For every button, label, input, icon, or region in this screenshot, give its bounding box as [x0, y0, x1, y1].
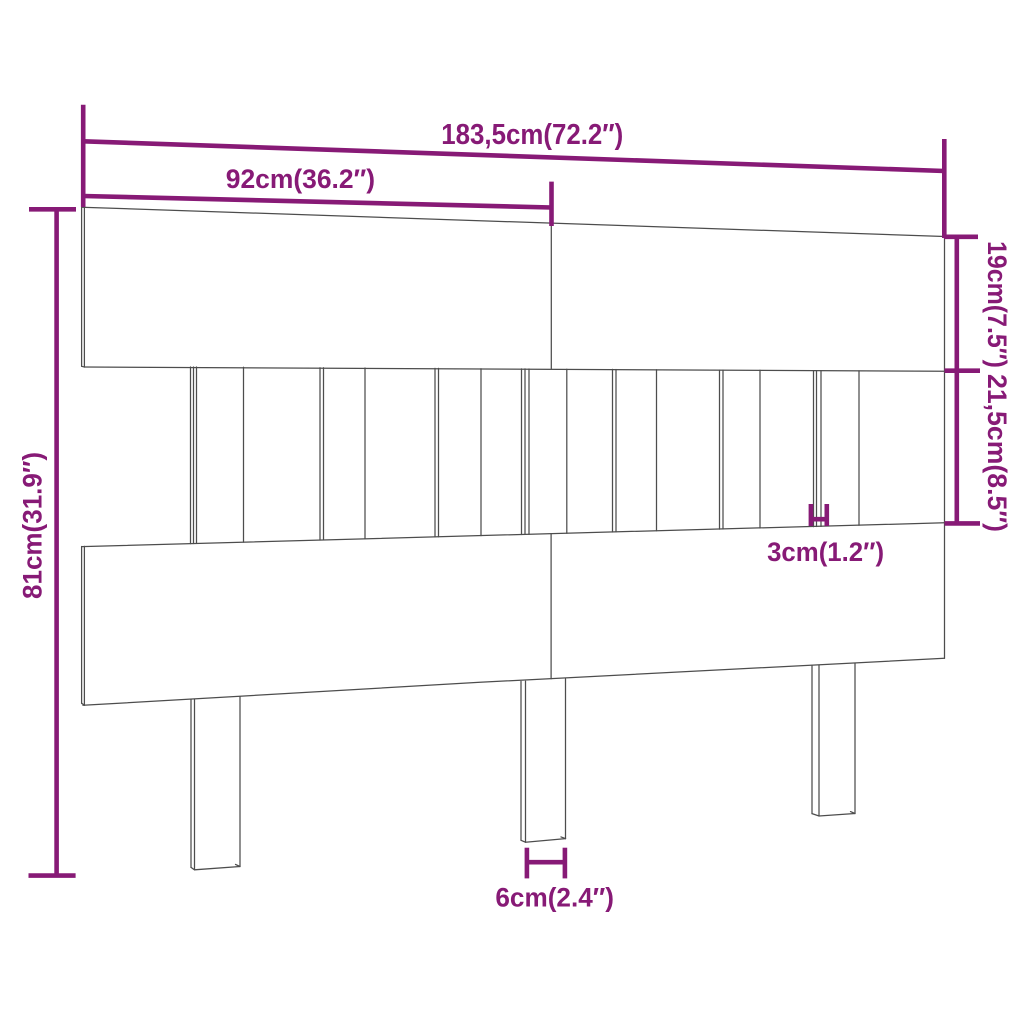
- svg-text:21,5cm(8.5″): 21,5cm(8.5″): [982, 374, 1012, 532]
- svg-text:183,5cm(72.2″): 183,5cm(72.2″): [441, 119, 623, 151]
- svg-text:3cm(1.2″): 3cm(1.2″): [767, 537, 884, 567]
- svg-text:19cm(7.5″): 19cm(7.5″): [982, 241, 1012, 368]
- svg-text:6cm(2.4″): 6cm(2.4″): [495, 883, 614, 913]
- svg-text:81cm(31.9″): 81cm(31.9″): [18, 452, 48, 599]
- svg-text:92cm(36.2″): 92cm(36.2″): [226, 164, 375, 194]
